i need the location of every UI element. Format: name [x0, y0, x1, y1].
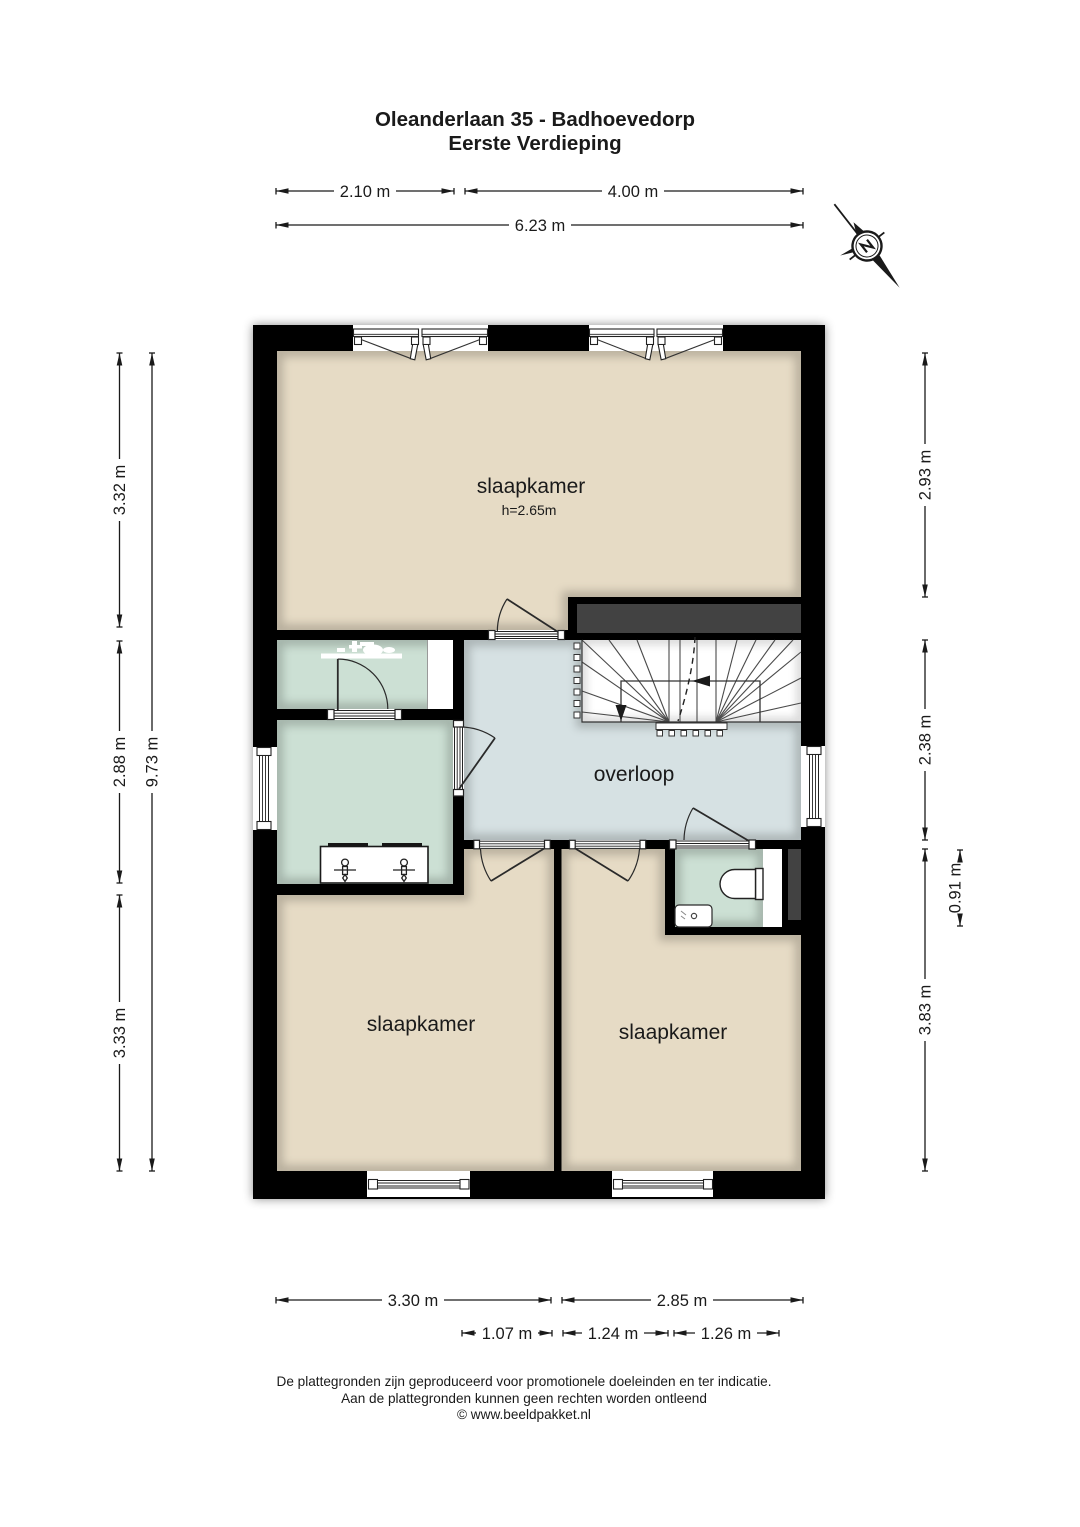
svg-text:© www.beeldpakket.nl: © www.beeldpakket.nl: [457, 1407, 591, 1422]
svg-text:Oleanderlaan 35 - Badhoevedorp: Oleanderlaan 35 - Badhoevedorp: [375, 108, 695, 131]
svg-text:3.30 m: 3.30 m: [388, 1292, 438, 1310]
svg-text:Eerste Verdieping: Eerste Verdieping: [448, 132, 621, 155]
svg-text:2.10 m: 2.10 m: [340, 183, 390, 201]
svg-text:slaapkamer: slaapkamer: [477, 475, 586, 498]
svg-text:slaapkamer: slaapkamer: [619, 1021, 728, 1044]
svg-text:2.38 m: 2.38 m: [917, 715, 935, 765]
svg-text:Aan de plattegronden kunnen ge: Aan de plattegronden kunnen geen rechten…: [341, 1391, 707, 1406]
svg-text:overloop: overloop: [594, 763, 675, 786]
svg-text:h=2.65m: h=2.65m: [502, 502, 557, 518]
svg-text:3.32 m: 3.32 m: [111, 465, 129, 515]
svg-text:0.91 m: 0.91 m: [947, 863, 965, 913]
svg-text:De plattegronden zijn geproduc: De plattegronden zijn geproduceerd voor …: [277, 1374, 772, 1389]
svg-text:slaapkamer: slaapkamer: [367, 1013, 476, 1036]
svg-text:2.88 m: 2.88 m: [111, 737, 129, 787]
svg-text:4.00 m: 4.00 m: [608, 183, 658, 201]
svg-text:1.24 m: 1.24 m: [588, 1325, 638, 1343]
svg-text:1.07 m: 1.07 m: [482, 1325, 532, 1343]
svg-text:1.26 m: 1.26 m: [701, 1325, 751, 1343]
svg-text:2.85 m: 2.85 m: [657, 1292, 707, 1310]
svg-text:6.23 m: 6.23 m: [515, 217, 565, 235]
svg-text:3.33 m: 3.33 m: [111, 1008, 129, 1058]
svg-text:9.73 m: 9.73 m: [144, 737, 162, 787]
svg-text:3.83 m: 3.83 m: [917, 985, 935, 1035]
svg-text:2.93 m: 2.93 m: [917, 450, 935, 500]
